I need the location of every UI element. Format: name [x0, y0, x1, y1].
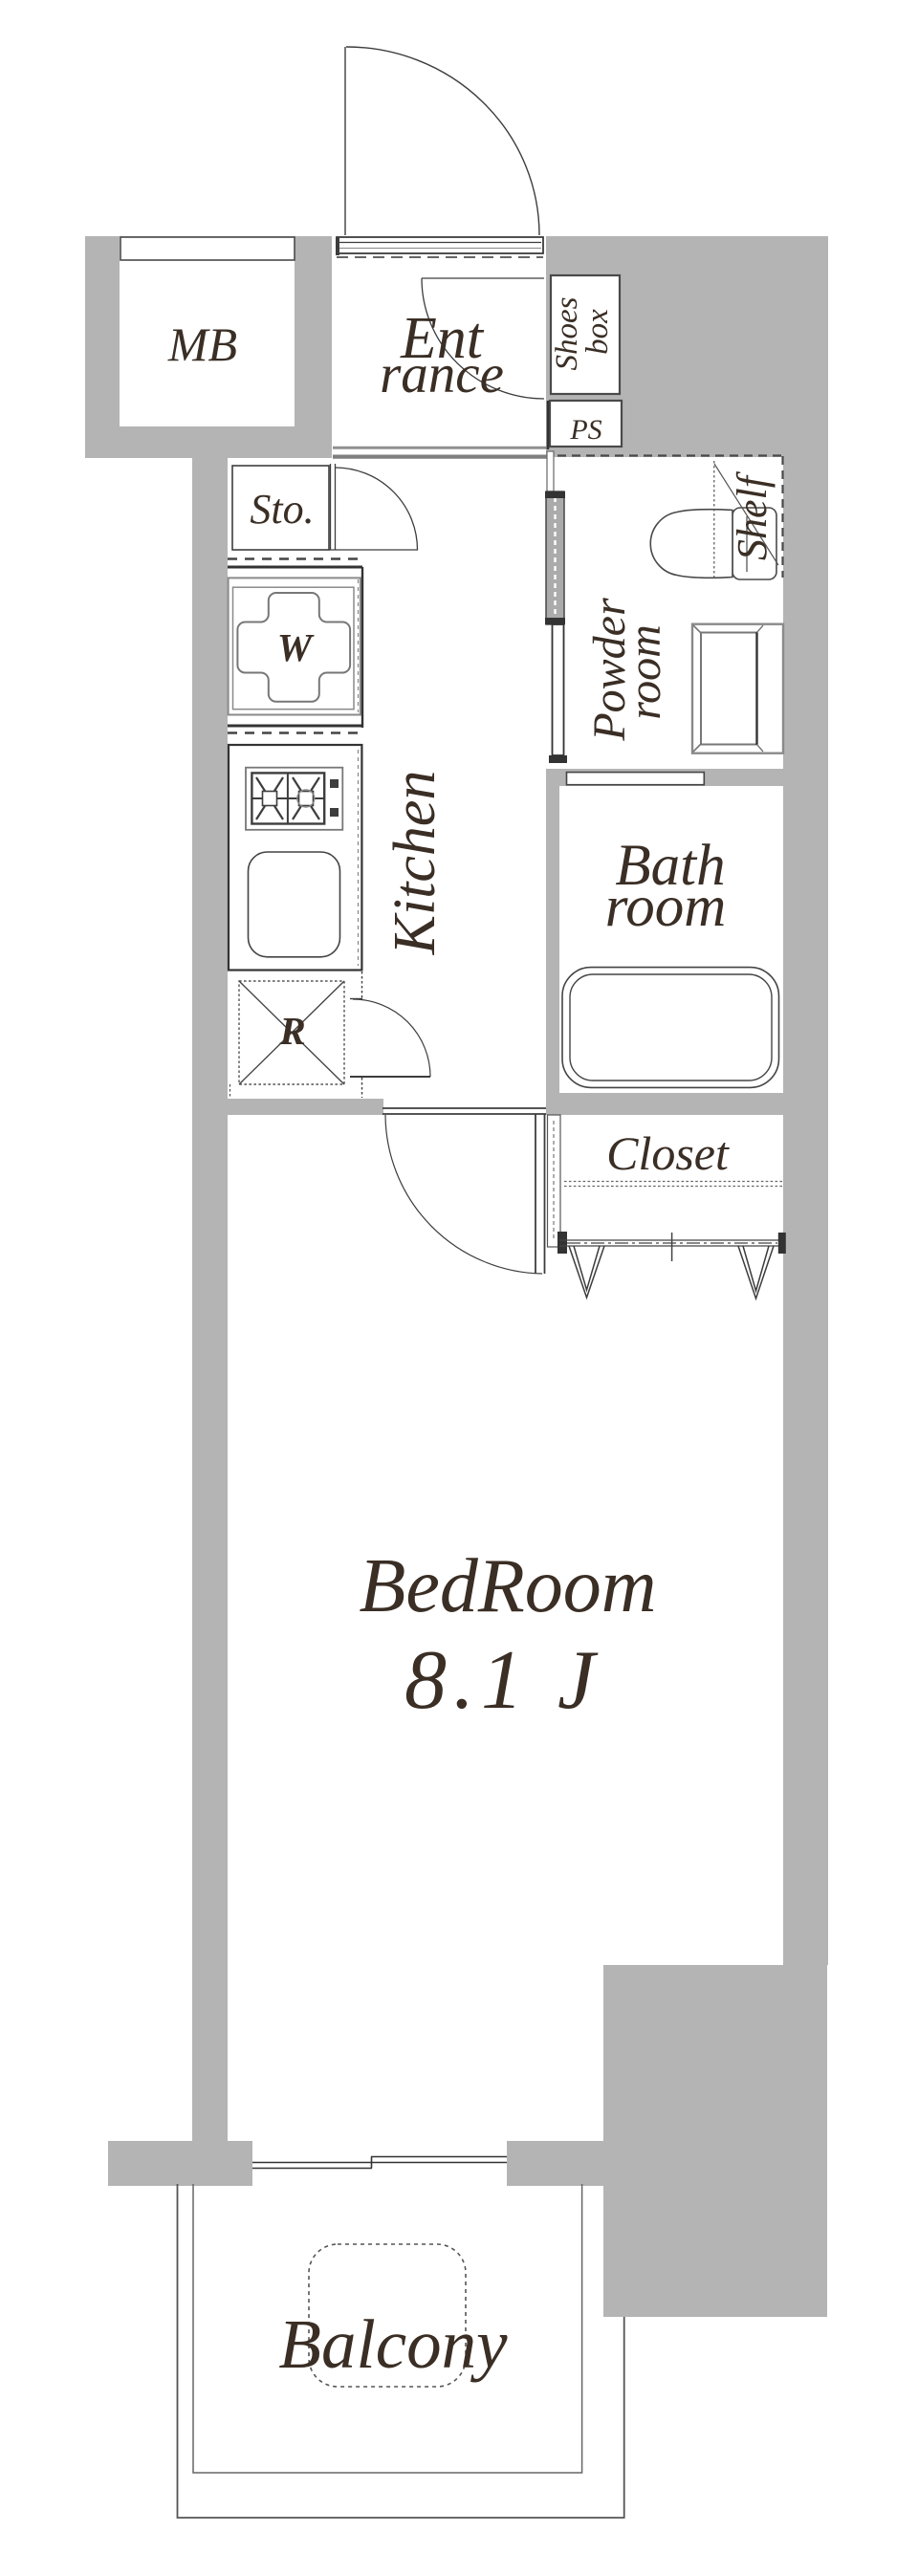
svg-text:Closet: Closet: [606, 1126, 730, 1180]
svg-text:MB: MB: [167, 317, 237, 371]
svg-text:rance: rance: [380, 344, 504, 404]
svg-text:Balcony: Balcony: [278, 2305, 508, 2383]
svg-text:8.1 J: 8.1 J: [404, 1634, 601, 1727]
svg-text:R: R: [278, 1009, 305, 1053]
svg-text:room: room: [620, 624, 670, 720]
svg-text:Shoes: Shoes: [550, 297, 584, 371]
svg-text:Shelf: Shelf: [729, 470, 776, 560]
svg-text:room: room: [605, 875, 727, 939]
svg-text:W: W: [277, 625, 315, 669]
svg-text:PS: PS: [569, 414, 601, 446]
svg-text:Kitchen: Kitchen: [382, 771, 448, 956]
svg-text:Sto.: Sto.: [250, 486, 314, 533]
svg-text:box: box: [580, 309, 615, 355]
svg-text:BedRoom: BedRoom: [359, 1544, 656, 1628]
